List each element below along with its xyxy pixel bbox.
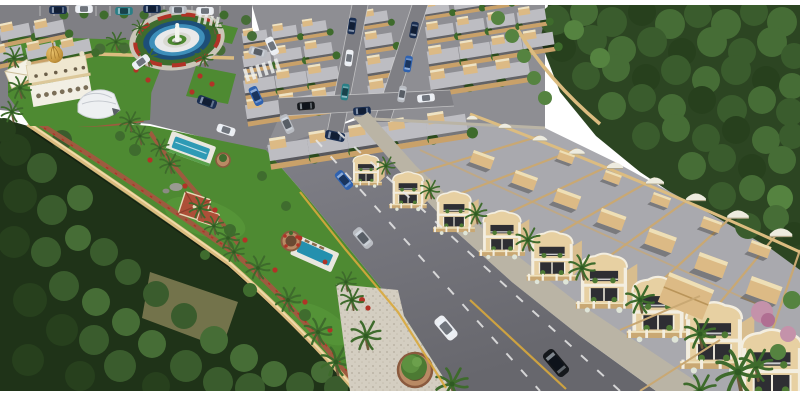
rock xyxy=(170,183,183,191)
scene xyxy=(0,0,800,400)
frame-top xyxy=(0,0,800,5)
pink-flowering-tree xyxy=(780,326,796,342)
aerial-masterplan-render xyxy=(0,0,800,400)
frame-bottom xyxy=(0,391,800,400)
rock-small xyxy=(163,189,170,194)
render-canvas xyxy=(0,0,800,400)
stone-planter xyxy=(282,231,301,251)
round-planter-upper xyxy=(216,153,230,167)
